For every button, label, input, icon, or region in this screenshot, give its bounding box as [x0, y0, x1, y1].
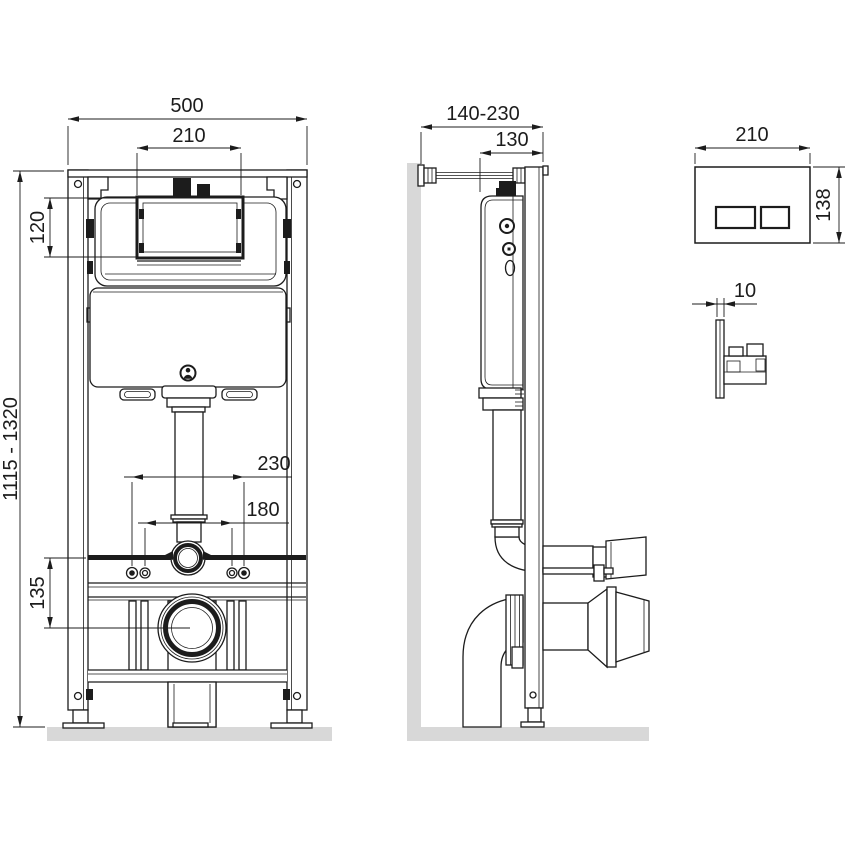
- dim-plate-width: 210: [735, 124, 768, 146]
- filler-valve-cap: [173, 178, 191, 197]
- wall-surface: [407, 163, 421, 727]
- dim-outlet-height: 135: [27, 576, 49, 609]
- flush-plate-front-drawing: [695, 167, 810, 243]
- floor-surface: [47, 727, 332, 741]
- flush-button-large: [716, 207, 755, 228]
- dim-plate-height: 138: [813, 188, 835, 221]
- floor-surface-side: [407, 727, 649, 741]
- dim-plate-thickness: 10: [734, 280, 756, 302]
- flush-plate: [695, 167, 810, 243]
- dim-frame-depth: 130: [495, 129, 528, 151]
- side-view-drawing: [407, 163, 649, 741]
- dim-fixing-inner: 180: [246, 499, 279, 521]
- installation-frame-drawing: 500 210 120 1115 - 1320 230 18: [0, 0, 848, 848]
- dim-opening-width: 210: [172, 125, 205, 147]
- dim-height-range: 1115 - 1320: [0, 397, 22, 501]
- flush-plate-side-drawing: [716, 320, 766, 398]
- technical-drawing-page: 500 210 120 1115 - 1320 230 18: [0, 0, 848, 848]
- dim-fixing-outer: 230: [257, 453, 290, 475]
- flush-button-small: [761, 207, 789, 228]
- person-logo-icon: [181, 366, 196, 381]
- service-opening: [137, 197, 243, 258]
- dim-frame-width: 500: [170, 95, 203, 117]
- dim-wall-distance: 140-230: [446, 103, 519, 125]
- dim-opening-height: 120: [27, 211, 49, 244]
